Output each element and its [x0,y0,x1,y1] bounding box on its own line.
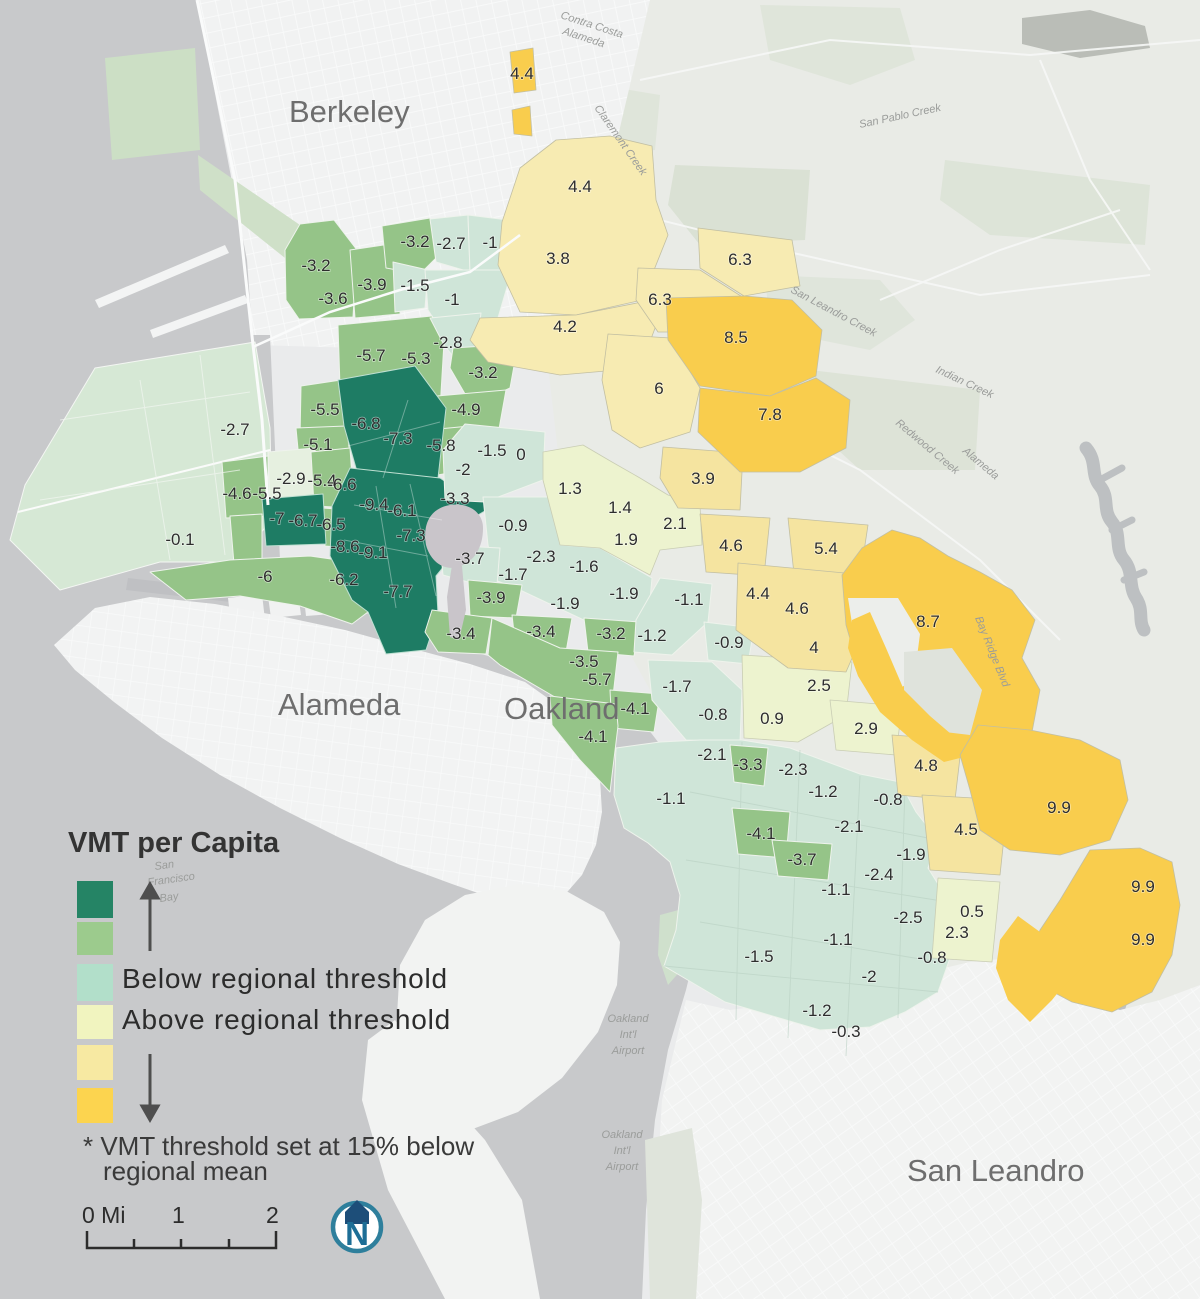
svg-text:-6.5: -6.5 [316,515,345,534]
svg-text:7.8: 7.8 [758,405,782,424]
svg-text:-3.2: -3.2 [400,232,429,251]
svg-text:-1.6: -1.6 [569,557,598,576]
svg-text:-2.7: -2.7 [220,420,249,439]
svg-text:3.8: 3.8 [546,249,570,268]
svg-text:VMT per Capita: VMT per Capita [68,827,280,859]
svg-text:-4.9: -4.9 [451,400,480,419]
svg-text:4.5: 4.5 [954,820,978,839]
svg-text:1.9: 1.9 [614,530,638,549]
svg-text:-6.1: -6.1 [387,501,416,520]
svg-text:6.3: 6.3 [648,290,672,309]
svg-text:-2.7: -2.7 [436,234,465,253]
svg-text:-2: -2 [861,967,876,986]
svg-text:0.9: 0.9 [760,709,784,728]
svg-text:-2.3: -2.3 [526,547,555,566]
svg-text:-5.5: -5.5 [310,400,339,419]
svg-text:-1.2: -1.2 [808,782,837,801]
svg-text:-3.4: -3.4 [446,624,475,643]
svg-text:1.4: 1.4 [608,498,632,517]
svg-text:-1.7: -1.7 [498,565,527,584]
svg-text:-5.7: -5.7 [356,346,385,365]
svg-text:-6: -6 [257,567,272,586]
svg-text:0: 0 [516,445,525,464]
svg-text:4.4: 4.4 [510,64,534,83]
svg-text:-1.2: -1.2 [802,1001,831,1020]
svg-text:-6.2: -6.2 [329,570,358,589]
svg-text:-9.4: -9.4 [359,495,388,514]
svg-text:2.3: 2.3 [945,923,969,942]
svg-text:-6.6: -6.6 [327,475,356,494]
svg-text:2.1: 2.1 [663,514,687,533]
svg-text:5.4: 5.4 [814,539,838,558]
svg-text:9.9: 9.9 [1131,930,1155,949]
svg-text:-1.1: -1.1 [674,590,703,609]
svg-text:0 Mi: 0 Mi [82,1202,125,1228]
svg-text:4.8: 4.8 [914,756,938,775]
svg-text:-1.9: -1.9 [896,845,925,864]
svg-text:2.9: 2.9 [854,719,878,738]
svg-text:-1.7: -1.7 [662,677,691,696]
svg-text:-0.8: -0.8 [917,948,946,967]
svg-text:2.5: 2.5 [807,676,831,695]
svg-text:-3.2: -3.2 [468,363,497,382]
svg-text:Berkeley: Berkeley [289,94,410,129]
svg-text:-1.5: -1.5 [477,441,506,460]
svg-text:-4.1: -4.1 [578,727,607,746]
svg-text:Oakland: Oakland [602,1129,644,1141]
svg-text:N: N [345,1215,369,1252]
svg-text:-0.8: -0.8 [873,790,902,809]
svg-text:-3.4: -3.4 [526,622,555,641]
svg-text:-3.2: -3.2 [301,256,330,275]
svg-text:-1.1: -1.1 [823,930,852,949]
svg-text:-3.7: -3.7 [787,850,816,869]
svg-text:-7.7: -7.7 [383,582,412,601]
svg-text:-2.8: -2.8 [433,333,462,352]
svg-text:-1.9: -1.9 [550,594,579,613]
svg-text:-4.6: -4.6 [222,484,251,503]
svg-text:4.4: 4.4 [746,584,770,603]
svg-text:-3.3: -3.3 [733,755,762,774]
svg-text:8.7: 8.7 [916,612,940,631]
svg-text:-2.1: -2.1 [834,817,863,836]
svg-text:4.6: 4.6 [785,599,809,618]
svg-text:1: 1 [172,1202,185,1228]
svg-text:1.3: 1.3 [558,479,582,498]
svg-text:-1: -1 [444,290,459,309]
svg-text:-1.1: -1.1 [656,789,685,808]
svg-text:-2.1: -2.1 [697,745,726,764]
svg-text:-0.8: -0.8 [698,705,727,724]
svg-text:-7: -7 [269,509,284,528]
svg-text:-7.3: -7.3 [396,526,425,545]
svg-text:Airport: Airport [605,1161,639,1173]
svg-text:0.5: 0.5 [960,902,984,921]
svg-text:Airport: Airport [611,1045,645,1057]
svg-text:-7.3: -7.3 [383,429,412,448]
svg-text:9.9: 9.9 [1131,877,1155,896]
svg-text:-3.2: -3.2 [596,624,625,643]
svg-text:-6.7: -6.7 [288,511,317,530]
svg-text:-3.5: -3.5 [569,652,598,671]
svg-text:-8.6: -8.6 [330,537,359,556]
svg-text:Oakland: Oakland [504,691,619,726]
svg-text:-3.9: -3.9 [357,275,386,294]
svg-text:-1.1: -1.1 [821,880,850,899]
svg-text:4.6: 4.6 [719,536,743,555]
svg-text:-5.5: -5.5 [252,484,281,503]
svg-text:-2.4: -2.4 [864,865,893,884]
svg-text:San Leandro: San Leandro [907,1153,1085,1188]
svg-text:-0.1: -0.1 [165,530,194,549]
svg-text:9.9: 9.9 [1047,798,1071,817]
svg-text:-5.1: -5.1 [303,435,332,454]
svg-text:2: 2 [266,1202,279,1228]
svg-text:4.4: 4.4 [568,177,592,196]
svg-text:-3.3: -3.3 [440,489,469,508]
svg-text:-1.5: -1.5 [400,276,429,295]
svg-text:Int'l: Int'l [614,1145,631,1157]
svg-text:Alameda: Alameda [278,687,401,722]
svg-text:-1.5: -1.5 [744,947,773,966]
svg-text:3.9: 3.9 [691,469,715,488]
svg-text:-6.8: -6.8 [351,414,380,433]
svg-text:-0.9: -0.9 [714,633,743,652]
svg-text:-1: -1 [482,233,497,252]
svg-text:-9.1: -9.1 [358,543,387,562]
svg-text:6.3: 6.3 [728,250,752,269]
svg-text:-5.7: -5.7 [582,670,611,689]
svg-text:Int'l: Int'l [620,1029,637,1041]
svg-text:Below regional threshold: Below regional threshold [122,963,448,994]
svg-text:-4.1: -4.1 [746,824,775,843]
svg-text:-1.2: -1.2 [637,626,666,645]
svg-text:8.5: 8.5 [724,328,748,347]
svg-text:-2: -2 [455,460,470,479]
svg-text:-5.8: -5.8 [426,436,455,455]
svg-text:4: 4 [809,638,818,657]
svg-text:-4.1: -4.1 [620,699,649,718]
svg-text:-3.7: -3.7 [455,549,484,568]
svg-text:-3.9: -3.9 [476,588,505,607]
svg-text:-3.6: -3.6 [318,289,347,308]
svg-text:4.2: 4.2 [553,317,577,336]
svg-text:-2.3: -2.3 [778,760,807,779]
svg-text:Above regional threshold: Above regional threshold [122,1004,451,1035]
svg-text:Oakland: Oakland [608,1013,650,1025]
svg-text:-0.3: -0.3 [831,1022,860,1041]
svg-text:-2.5: -2.5 [893,908,922,927]
svg-text:regional mean: regional mean [103,1156,268,1186]
svg-text:6: 6 [654,379,663,398]
svg-text:-5.3: -5.3 [401,349,430,368]
svg-text:-1.9: -1.9 [609,584,638,603]
svg-text:-0.9: -0.9 [498,516,527,535]
